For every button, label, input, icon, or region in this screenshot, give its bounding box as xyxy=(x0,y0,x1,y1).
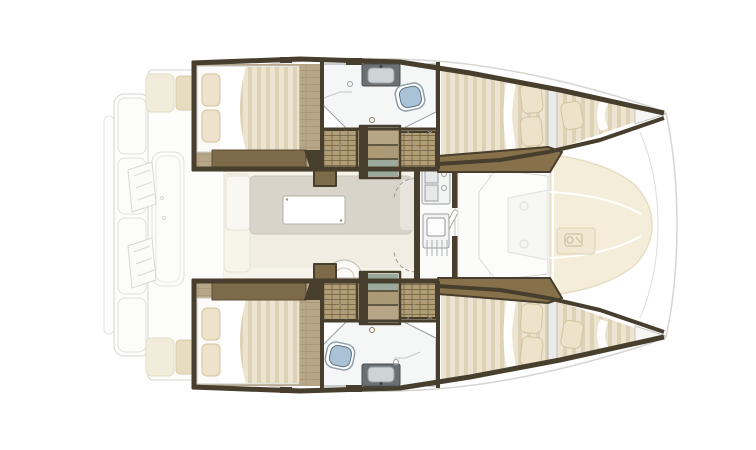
cockpit-seat-cushion xyxy=(176,76,194,110)
bed-duvet xyxy=(238,67,299,151)
salon-table xyxy=(283,196,345,224)
salon-lounge-arm xyxy=(400,180,416,230)
wardrobe-shelves xyxy=(400,282,436,318)
wardrobe-shelves xyxy=(400,132,436,168)
salon-seat-back xyxy=(226,176,250,230)
forward-cockpit-seat-inner xyxy=(508,190,548,260)
pillow xyxy=(202,308,220,340)
cockpit-seat-cushion xyxy=(146,338,174,376)
pillow xyxy=(520,303,543,333)
hull-entry-step xyxy=(314,264,336,280)
pillow xyxy=(202,74,220,106)
table-fitting xyxy=(286,198,288,200)
deck-hatch xyxy=(346,58,362,65)
cockpit-bench xyxy=(152,152,184,286)
cabin-partition xyxy=(548,298,557,364)
faucet xyxy=(380,65,383,68)
table-fitting xyxy=(340,219,342,221)
bed-duvet xyxy=(238,299,299,383)
pillow xyxy=(202,110,220,142)
floor-plan-page xyxy=(0,0,756,450)
catamaran-floor-plan xyxy=(0,0,756,450)
faucet xyxy=(380,382,383,385)
cabin-bench xyxy=(212,283,306,300)
bow-outer-edge xyxy=(666,113,677,337)
platform-step xyxy=(118,298,146,352)
pillow xyxy=(560,319,584,349)
salon xyxy=(224,172,416,278)
port-aft-cabin-bed xyxy=(197,66,299,152)
cockpit-seat-cushion xyxy=(176,340,194,374)
bow-sunpads xyxy=(550,155,652,295)
deck-hatch xyxy=(280,387,292,393)
forward-cockpit xyxy=(458,155,652,295)
pillow xyxy=(560,100,584,130)
platform-step xyxy=(118,98,146,154)
windlass-plate xyxy=(557,228,595,254)
pillow xyxy=(520,116,543,146)
transom-edge xyxy=(104,116,114,334)
deck-hatch xyxy=(280,57,292,63)
hull-entry-step xyxy=(314,170,336,186)
wardrobe-shelves xyxy=(323,282,357,320)
cabin-partition xyxy=(548,86,557,152)
sink-basin xyxy=(368,367,394,382)
galley-wall xyxy=(414,158,420,284)
galley xyxy=(414,158,459,284)
wardrobe-shelves xyxy=(323,130,357,168)
pillow xyxy=(202,344,220,376)
galley-wall xyxy=(452,236,458,284)
sink-basin xyxy=(368,68,394,83)
starboard-aft-cabin-bed xyxy=(197,298,299,384)
port-forward-cabin xyxy=(441,66,666,162)
cabin-bench xyxy=(212,150,306,167)
starboard-forward-cabin xyxy=(441,288,666,384)
deck-hatch xyxy=(346,385,362,392)
cockpit-seat-cushion xyxy=(146,74,174,112)
